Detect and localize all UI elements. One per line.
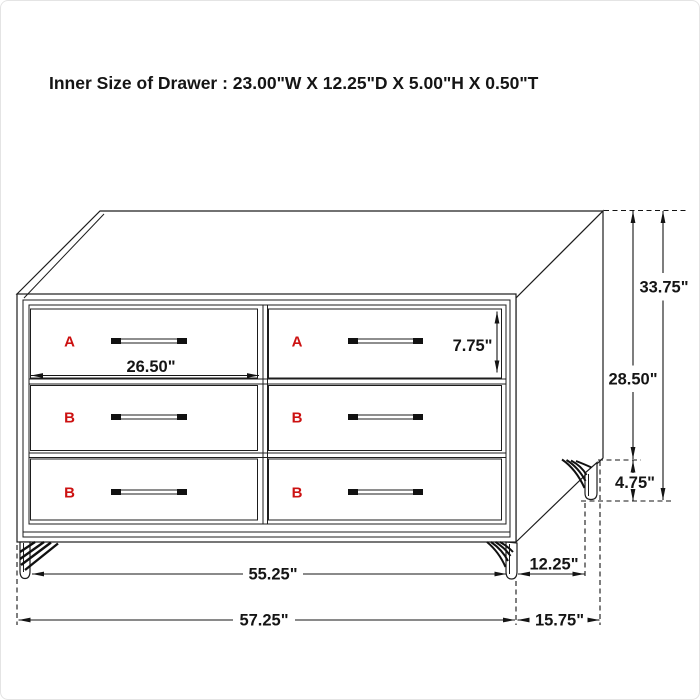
drawer-letter: A <box>64 334 75 351</box>
front-left-leg <box>20 542 58 579</box>
dim-overall-depth: 15.75" <box>518 612 600 630</box>
drawer-letter: A <box>292 334 303 351</box>
dim-drawer-face-width-label: 26.50" <box>126 358 175 376</box>
dim-case-height: 28.50" <box>608 211 657 459</box>
dim-overall-height: 33.75" <box>639 211 688 500</box>
product-dimension-diagram: Inner Size of Drawer : 23.00"W X 12.25"D… <box>0 0 700 700</box>
dim-overall-width-label: 57.25" <box>239 612 288 630</box>
dresser-cabinet <box>17 211 603 542</box>
dim-drawer-face-height-label: 7.75" <box>453 337 493 355</box>
dim-overall-depth-label: 15.75" <box>535 612 584 630</box>
dim-front-leg-span-label: 55.25" <box>248 566 297 584</box>
cabinet-front-face <box>17 294 516 542</box>
dim-overall-height-label: 33.75" <box>639 279 688 297</box>
page-title: Inner Size of Drawer : 23.00"W X 12.25"D… <box>49 73 539 93</box>
drawer-letter: B <box>64 410 75 427</box>
dim-case-height-label: 28.50" <box>608 371 657 389</box>
dim-leg-height-label: 4.75" <box>615 474 655 492</box>
dim-side-leg-span: 12.25" <box>518 556 585 575</box>
dim-front-leg-span: 55.25" <box>32 566 507 584</box>
cabinet-top-face <box>17 211 603 298</box>
dim-overall-width: 57.25" <box>19 612 516 630</box>
dim-leg-height: 4.75" <box>615 461 655 502</box>
drawer-letter: B <box>292 410 303 427</box>
drawer-letter: B <box>64 485 75 502</box>
dresser-diagram-canvas: Inner Size of Drawer : 23.00"W X 12.25"D… <box>1 1 700 700</box>
drawer-letter: B <box>292 485 303 502</box>
dim-side-leg-span-label: 12.25" <box>529 556 578 574</box>
